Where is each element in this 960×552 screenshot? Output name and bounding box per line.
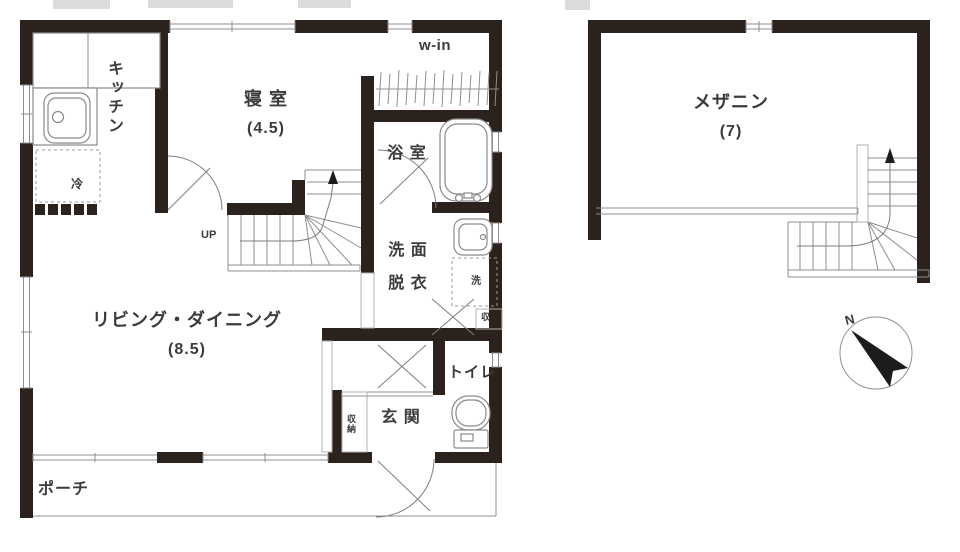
room-label-washroom-line2: 脱 衣 [358,276,458,292]
room-label-porch: ポーチ [38,482,89,498]
north-arrow [851,330,908,387]
compass [840,317,912,389]
room-size-mezzanine: (7) [651,124,811,140]
up-arrow [328,170,338,184]
washbasin [454,219,492,255]
room-label-toilet: トイレ [422,365,522,380]
kitchen-sink [44,93,90,143]
up-label: UP [201,230,216,241]
edge-artifacts [53,0,590,10]
room-size-living-dining: (8.5) [47,342,327,358]
floor2-walls [588,20,930,283]
refrigerator-box [36,150,100,202]
storage-abbrev-label: 収 [481,313,491,322]
kitchen-half-wall [35,204,97,215]
storage-label: 収納 [346,414,355,452]
room-label-washroom-line1: 洗 面 [358,243,458,259]
room-label-bathroom: 浴 室 [357,146,457,162]
washer-label: 洗 [471,277,482,287]
up-arrow-mezzanine [885,148,895,163]
floor-plan: キッチン 寝 室 (4.5) w-in 浴 室 洗 面 脱 衣 リビング・ダイニ… [0,0,960,552]
room-label-living-dining: リビング・ダイニング [47,311,327,329]
closet-hanger-rod [376,70,499,107]
room-label-entrance: 玄 関 [351,410,451,426]
room-label-bedroom: 寝 室 [196,90,336,108]
toilet-fixture [452,396,490,448]
room-label-kitchen: キッチン [105,60,121,164]
room-size-bedroom: (4.5) [196,121,336,137]
hall-door [378,345,426,388]
mezzanine-railing [596,145,868,222]
refrigerator-label: 冷 [71,178,84,190]
room-label-mezzanine: メザニン [651,93,811,111]
room-label-walk-in-closet: w-in [385,38,485,53]
